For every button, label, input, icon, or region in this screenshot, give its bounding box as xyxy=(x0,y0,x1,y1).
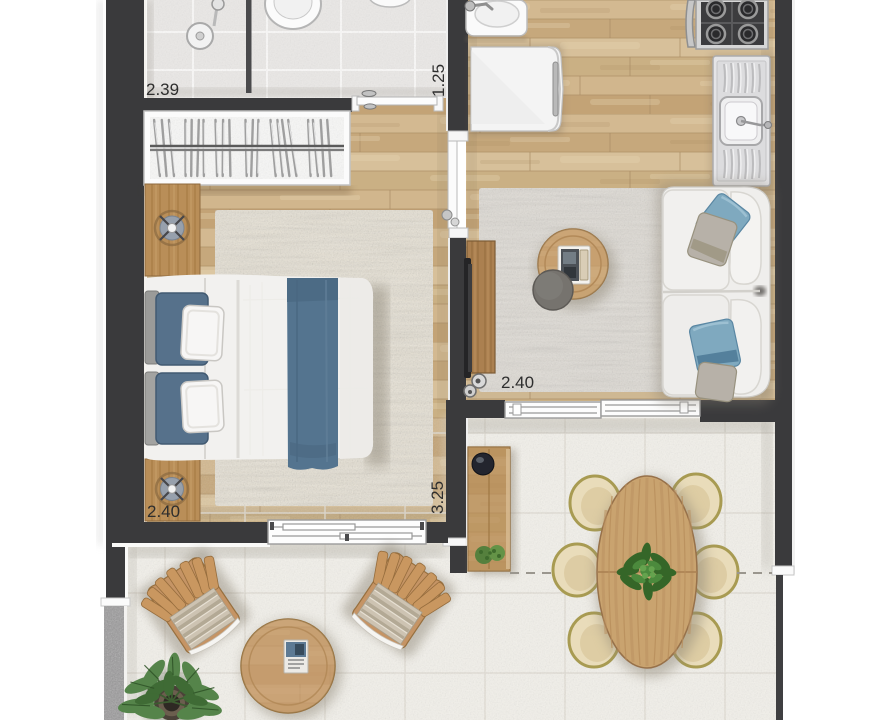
svg-text:3.25: 3.25 xyxy=(428,481,447,514)
svg-text:2.40: 2.40 xyxy=(501,373,534,392)
svg-text:2.39: 2.39 xyxy=(146,80,179,99)
svg-text:1.25: 1.25 xyxy=(429,64,448,97)
svg-text:2.40: 2.40 xyxy=(147,502,180,521)
